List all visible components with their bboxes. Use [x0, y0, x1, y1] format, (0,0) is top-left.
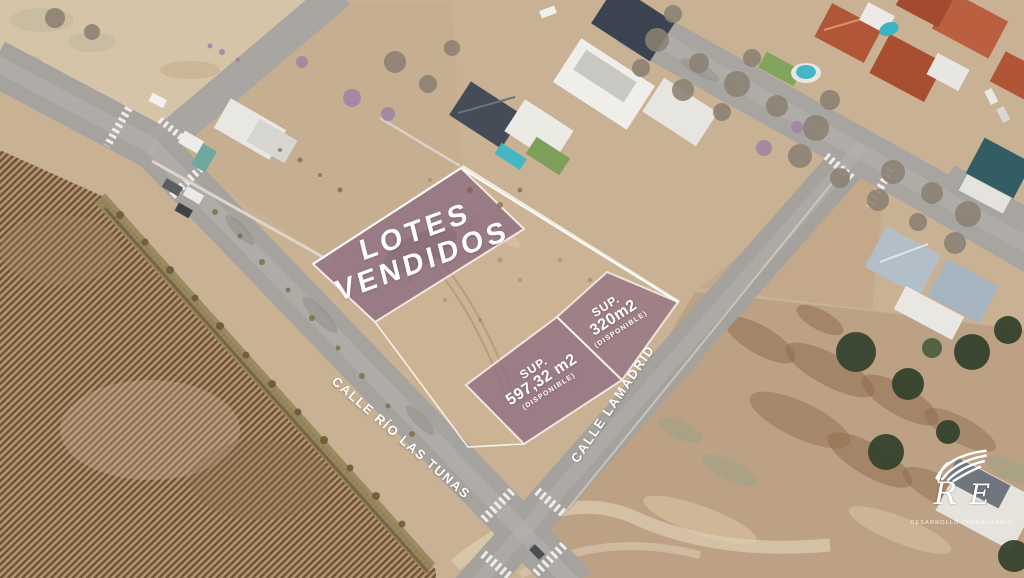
logo-letter-e: E — [970, 478, 990, 511]
company-logo: R E DESARROLLO INMOBILIARIO — [902, 462, 1022, 526]
logo-tagline: DESARROLLO INMOBILIARIO — [902, 520, 1022, 526]
aerial-photo: LOTES VENDIDOS SUP. 597,32 m2 (DISPONIBL… — [0, 0, 1024, 578]
aerial-scene — [0, 0, 1024, 578]
logo-letter-r: R — [934, 476, 957, 512]
logo-monogram: R E — [902, 462, 1022, 514]
